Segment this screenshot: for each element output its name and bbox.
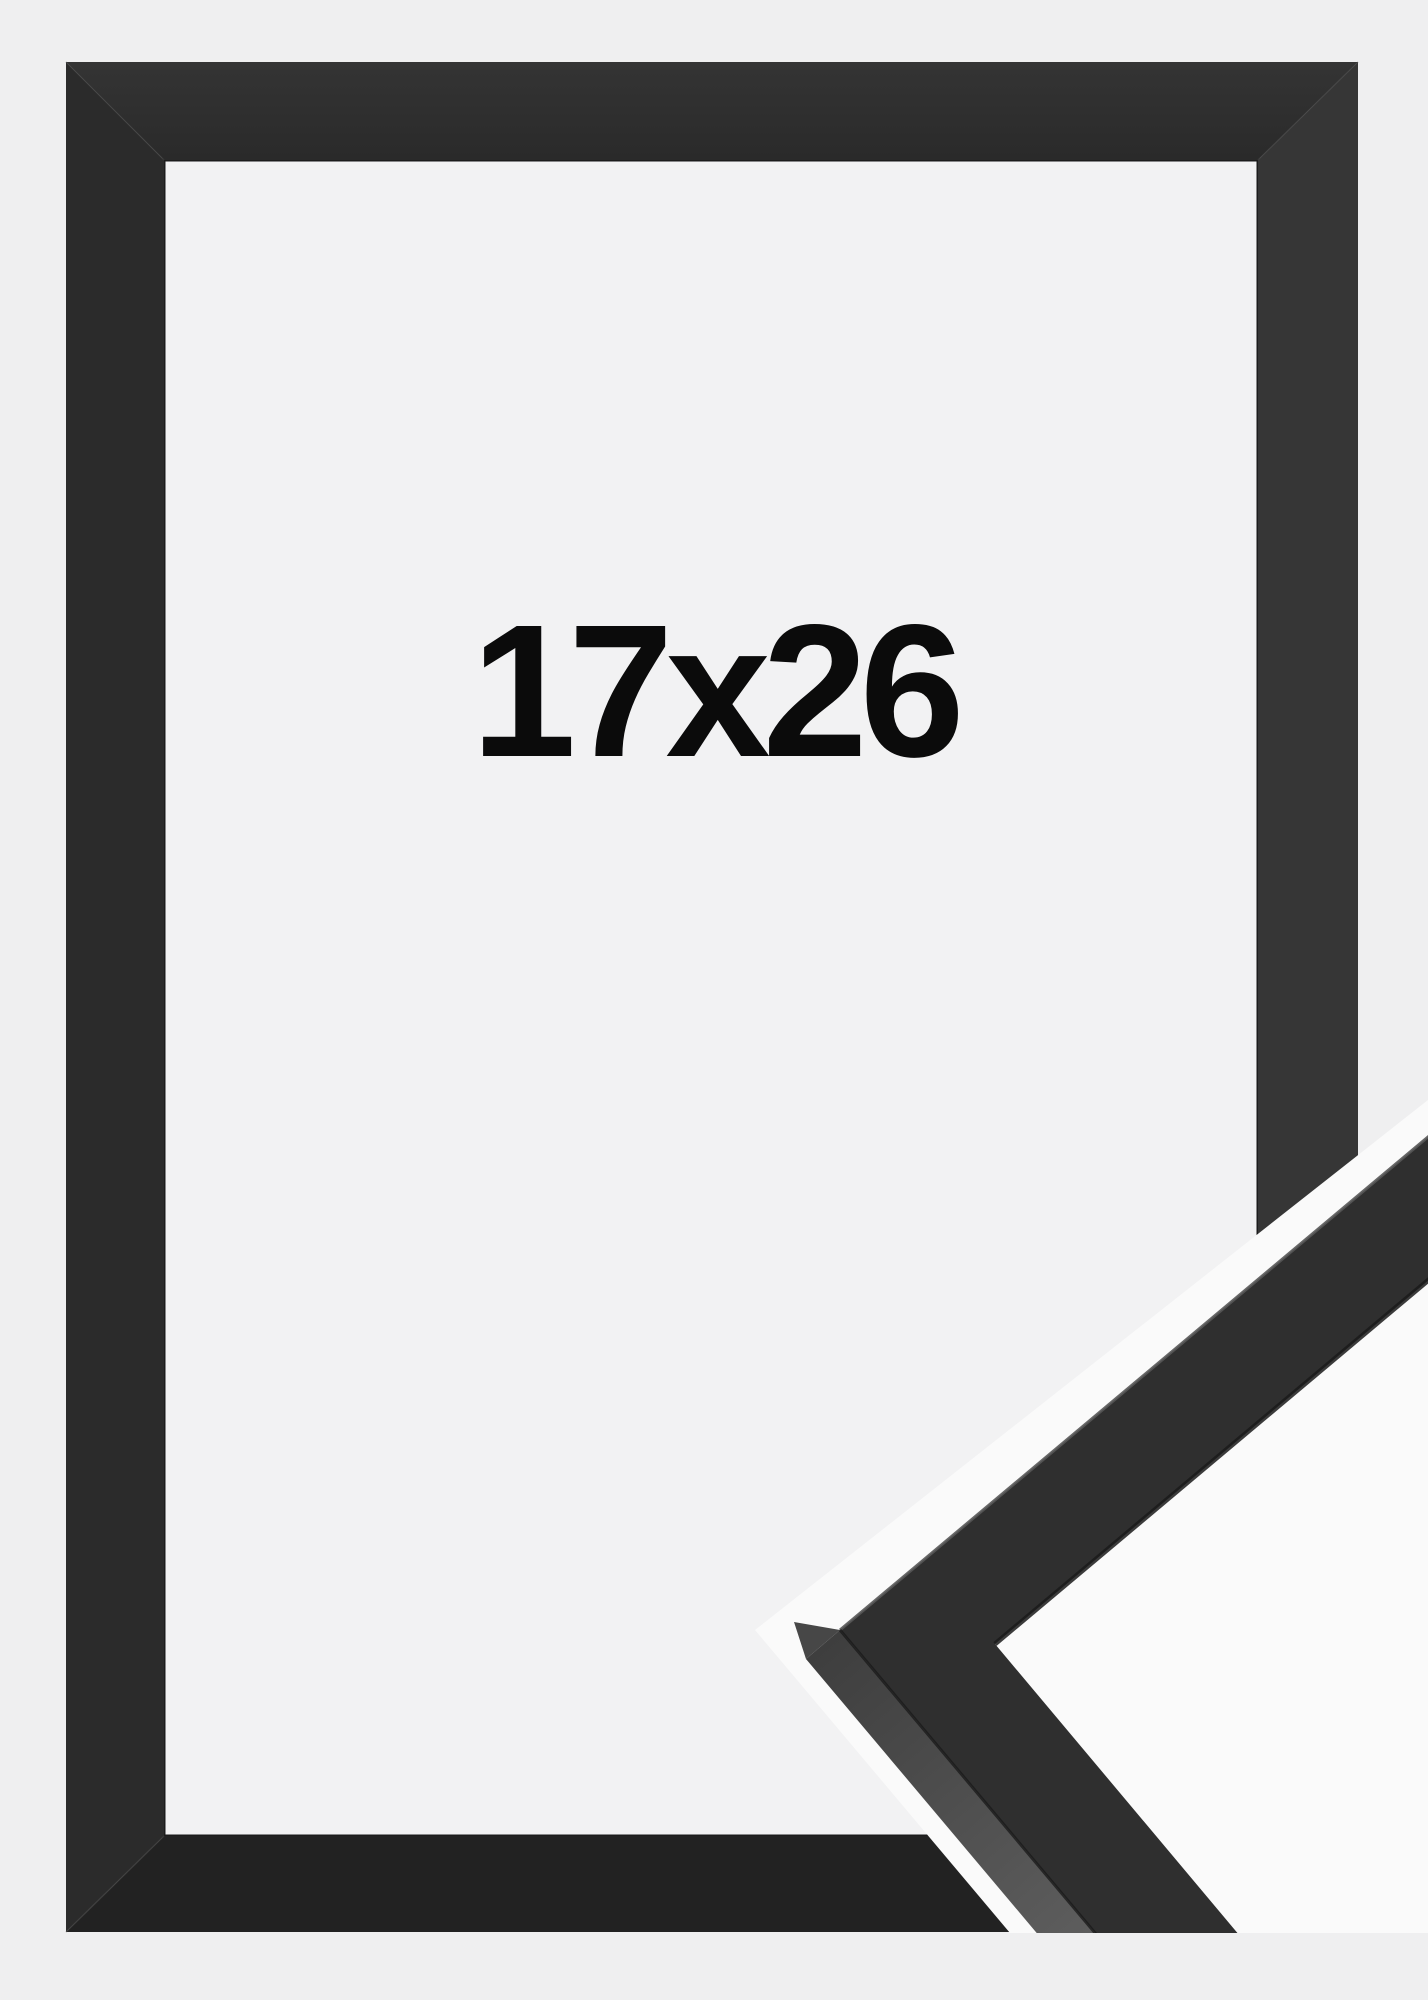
frame-left-band xyxy=(66,62,164,1932)
product-image: 17x26 xyxy=(0,0,1428,2000)
frame-photo xyxy=(0,0,1428,2000)
frame-top-band xyxy=(66,62,1358,160)
size-label: 17x26 xyxy=(0,597,1428,786)
